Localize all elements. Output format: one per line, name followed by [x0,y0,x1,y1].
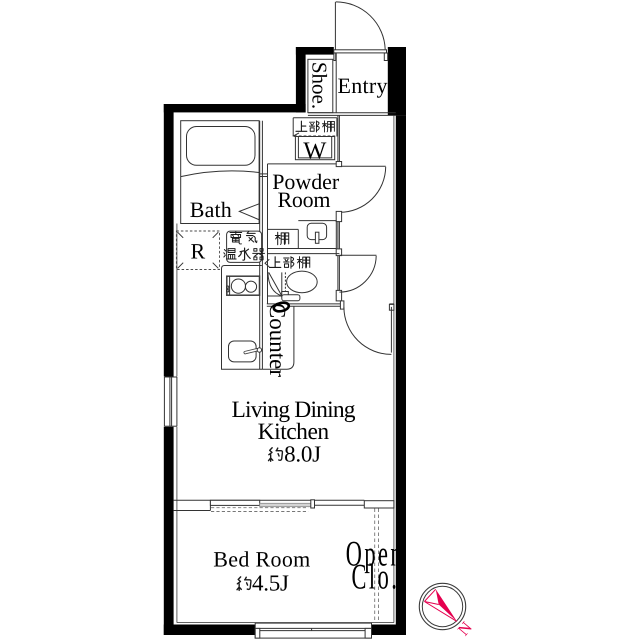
svg-text:8.0J: 8.0J [284,442,321,467]
svg-text:R: R [191,238,206,263]
svg-text:Bed Room: Bed Room [213,546,310,571]
svg-text:W: W [303,138,327,165]
svg-text:Shoe.: Shoe. [308,62,332,109]
svg-text:Room: Room [278,187,331,212]
svg-text:Clo.: Clo. [352,557,400,597]
svg-text:4.5J: 4.5J [252,571,289,596]
svg-text:Counter: Counter [265,303,290,377]
svg-text:Bath: Bath [190,197,232,222]
svg-text:Entry: Entry [338,73,388,98]
